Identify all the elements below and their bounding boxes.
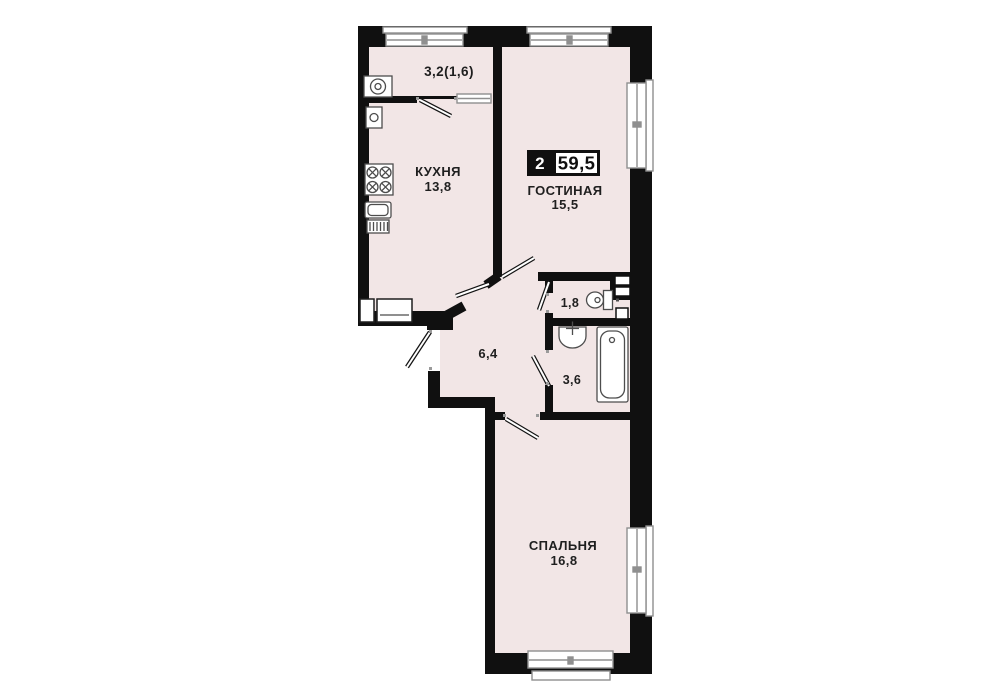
bathtub-icon (597, 327, 628, 402)
bedroom-name-label: СПАЛЬНЯ (529, 538, 597, 553)
floor-plan: 2 59,5 3,2(1,6) КУХНЯ 13,8 ГОСТИНАЯ 15,5… (0, 0, 1006, 700)
entrance-door (407, 332, 430, 367)
stove-icon (365, 164, 393, 195)
hallway-area-label: 6,4 (478, 346, 498, 361)
bathroom-area-label: 3,6 (563, 373, 582, 387)
floor-plan-page: 2 59,5 3,2(1,6) КУХНЯ 13,8 ГОСТИНАЯ 15,5… (0, 0, 1006, 700)
vent-cell (615, 287, 630, 296)
kitchen-area-label: 13,8 (425, 179, 452, 194)
boiler-icon (366, 107, 382, 128)
badge-total-area: 59,5 (558, 153, 596, 174)
wall-balcony-door-header (417, 96, 459, 99)
kitchen-sink-icon (365, 202, 391, 233)
bedroom-area-label: 16,8 (551, 553, 578, 568)
living-room-name-label: ГОСТИНАЯ (528, 183, 603, 198)
bedroom-bottom-window (528, 651, 613, 680)
balcony-partition-window (457, 94, 491, 103)
bedroom-floor (495, 408, 630, 653)
wall-hall-bottom (428, 397, 493, 408)
badge-rooms-count: 2 (535, 154, 545, 173)
balcony-area-label: 3,2(1,6) (424, 64, 474, 79)
wall-bath-bedroom (540, 412, 652, 420)
bedroom-right-window (627, 526, 653, 616)
wall-bedroom-left (485, 397, 495, 674)
apartment-badge: 2 59,5 (527, 150, 599, 176)
balcony-window (383, 27, 467, 46)
vent-cell (616, 308, 628, 319)
vent-cell (615, 276, 630, 285)
living-room-right-window (627, 80, 653, 171)
kitchen-name-label: КУХНЯ (415, 164, 461, 179)
washing-machine-icon (364, 76, 392, 97)
living-room-top-window (527, 27, 611, 46)
wall-kitchen-living (493, 47, 502, 277)
living-room-area-label: 15,5 (552, 197, 579, 212)
wc-area-label: 1,8 (561, 296, 580, 310)
kitchen-bottom-windows (360, 299, 412, 322)
